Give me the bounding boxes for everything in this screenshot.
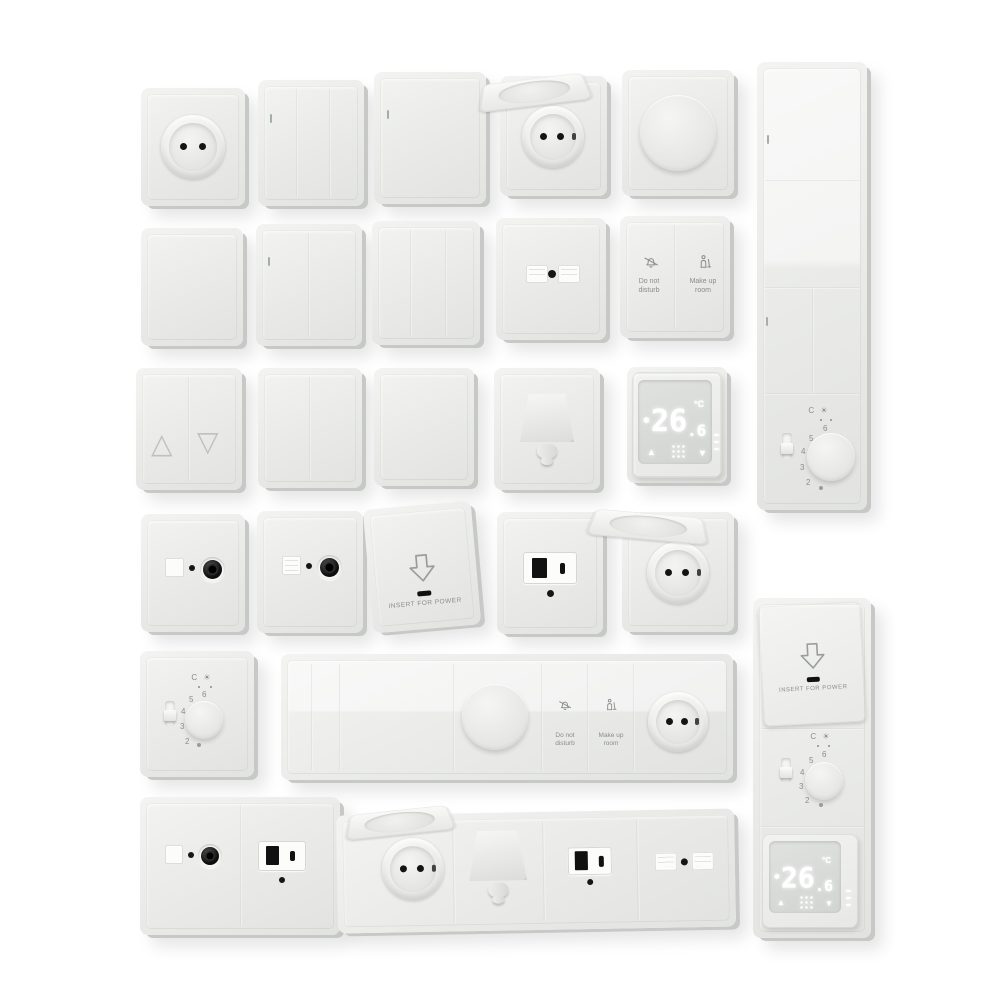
dial-number: 3 bbox=[800, 463, 804, 472]
indicator-led bbox=[767, 135, 769, 144]
socket-pin-hole bbox=[400, 865, 407, 872]
thermostat-knob bbox=[807, 433, 855, 481]
dial-scale-label: C ☀ bbox=[801, 406, 837, 415]
blinds-switch: △ ▽ bbox=[136, 368, 242, 490]
data-port bbox=[558, 265, 580, 283]
status-tick bbox=[714, 441, 719, 443]
socket-earth-contact bbox=[572, 133, 576, 140]
switch-1-gang bbox=[374, 72, 486, 204]
socket-well bbox=[648, 692, 708, 752]
dial-number: 2 bbox=[805, 796, 809, 805]
usb-port-plate bbox=[568, 847, 612, 876]
vertical-hotel-panel: INSERT FOR POWER C ☀ 6 5 4 3 2 ❄ 26 .6 °… bbox=[753, 598, 871, 938]
dot-grid-icon bbox=[799, 895, 813, 909]
socket-well bbox=[647, 542, 709, 604]
thermostat-knob bbox=[805, 762, 843, 800]
socket-pin-hole bbox=[180, 143, 187, 150]
dial-number: 4 bbox=[800, 768, 804, 777]
dial-number: 6 bbox=[202, 690, 206, 699]
scale-dot bbox=[820, 419, 822, 421]
coax-connector bbox=[198, 844, 222, 868]
no-bell-icon bbox=[642, 254, 660, 272]
socket-pin-hole bbox=[557, 133, 564, 140]
indicator-dot bbox=[587, 879, 593, 885]
frost-dot bbox=[819, 486, 823, 490]
mode-slider-handle bbox=[781, 443, 793, 454]
module-seam bbox=[452, 822, 456, 922]
usb-c-port bbox=[290, 851, 295, 861]
indicator-led bbox=[268, 257, 270, 266]
status-tick bbox=[846, 897, 851, 899]
keycard-face: INSERT FOR POWER bbox=[758, 601, 866, 726]
down-arrow-icon bbox=[796, 639, 830, 673]
data-port bbox=[282, 556, 301, 575]
socket-pin-hole bbox=[417, 865, 424, 872]
dial-number: 6 bbox=[823, 424, 827, 433]
status-tick bbox=[714, 434, 719, 436]
tv-sat-outlet bbox=[257, 511, 363, 633]
cable-hood bbox=[468, 830, 527, 881]
data-port bbox=[655, 853, 677, 871]
blank-plate bbox=[141, 228, 243, 346]
rocker-seam bbox=[339, 664, 341, 770]
status-tick bbox=[846, 890, 851, 892]
no-bell-icon bbox=[557, 698, 573, 714]
module-seam bbox=[761, 728, 863, 730]
rocker-seam bbox=[674, 225, 676, 329]
down-arrow-icon: ▼ bbox=[698, 449, 707, 458]
cable-gland-tip bbox=[541, 457, 553, 465]
hotel-service-switch: Do notdisturb Make uproom bbox=[620, 216, 730, 338]
mode-icon: ❄ bbox=[643, 417, 650, 425]
rocker-seam bbox=[296, 89, 298, 197]
rocker-seam bbox=[329, 89, 331, 197]
mode-icon: ❄ bbox=[774, 874, 780, 881]
blinds-up-icon: △ bbox=[151, 430, 173, 458]
module-seam bbox=[765, 393, 859, 395]
dimmer-knob bbox=[640, 95, 716, 171]
dial-scale-label: C ☀ bbox=[184, 673, 220, 682]
scale-dot bbox=[198, 686, 200, 688]
switch-2-gang bbox=[258, 368, 362, 488]
module-seam bbox=[541, 663, 543, 771]
dial-thermostat: C ☀ 6 5 4 3 2 bbox=[140, 651, 254, 777]
data-port bbox=[165, 558, 184, 577]
socket-pin-hole bbox=[665, 569, 672, 576]
socket-earth-contact bbox=[432, 865, 436, 872]
vertical-multi-panel: C ☀ 6 5 4 3 2 bbox=[757, 62, 867, 510]
thermostat-knob bbox=[185, 701, 223, 739]
socket-pin-hole bbox=[199, 143, 206, 150]
scale-dot bbox=[828, 745, 830, 747]
usb-c-port bbox=[599, 856, 604, 867]
rocker-seam bbox=[587, 663, 589, 771]
release-dot bbox=[681, 858, 688, 865]
frost-dot bbox=[197, 743, 201, 747]
data-port bbox=[165, 845, 183, 864]
tv-sat-outlet bbox=[141, 514, 245, 632]
unit-label: °C bbox=[694, 400, 704, 409]
up-arrow-icon: ▲ bbox=[647, 448, 656, 457]
indicator-dot bbox=[547, 590, 554, 597]
indicator-led bbox=[270, 114, 272, 123]
scale-dot bbox=[830, 419, 832, 421]
card-slot bbox=[417, 590, 431, 596]
module-seam bbox=[636, 819, 640, 919]
release-dot bbox=[189, 565, 195, 571]
dimmer-knob bbox=[462, 684, 528, 750]
thermostat-screen: ❄ 26 .6 °C ▲ ▼ bbox=[638, 380, 712, 464]
status-tick bbox=[714, 448, 719, 450]
up-arrow-icon: ▲ bbox=[777, 899, 785, 907]
switch-3-gang bbox=[258, 80, 364, 206]
rocker-seam bbox=[812, 289, 814, 391]
rocker-seam bbox=[188, 377, 190, 481]
cable-hood bbox=[520, 394, 574, 442]
temperature-fraction: .6 bbox=[687, 423, 706, 439]
frost-dot bbox=[819, 803, 823, 807]
usb-port-plate bbox=[258, 841, 306, 871]
coax-connector bbox=[200, 557, 225, 582]
rocker-seam bbox=[309, 377, 311, 479]
coax-connector bbox=[317, 555, 342, 580]
dnd-label: Do notdisturb bbox=[624, 278, 674, 296]
mur-label: Make uproom bbox=[678, 278, 728, 296]
rocker-seam bbox=[410, 230, 412, 336]
status-tick bbox=[846, 904, 851, 906]
release-dot bbox=[188, 852, 194, 858]
module-seam bbox=[542, 821, 546, 921]
temperature-value: 26 bbox=[651, 407, 687, 437]
dial-number: 3 bbox=[799, 782, 803, 791]
double-frame-tv-usb bbox=[140, 797, 340, 935]
usb-a-port bbox=[575, 851, 588, 870]
unit-label: °C bbox=[822, 857, 831, 865]
dial-scale-label: C ☀ bbox=[803, 732, 839, 741]
rocker-seam bbox=[308, 233, 310, 337]
temperature-fraction: .6 bbox=[815, 879, 833, 894]
socket-pin-hole bbox=[681, 718, 688, 725]
thermostat-screen: ❄ 26 .6 °C ▲ ▼ bbox=[769, 841, 841, 913]
module-seam bbox=[240, 806, 242, 926]
usb-a-port bbox=[532, 558, 547, 578]
release-dot bbox=[306, 563, 312, 569]
socket-well bbox=[522, 106, 584, 168]
dial-number: 5 bbox=[809, 756, 813, 765]
temperature-value: 26 bbox=[781, 864, 815, 892]
blinds-down-icon: ▽ bbox=[197, 428, 219, 456]
switch-1-gang bbox=[374, 368, 474, 486]
down-arrow-icon: ▼ bbox=[825, 900, 833, 908]
rotary-dimmer bbox=[622, 70, 734, 196]
rocker-seam bbox=[445, 230, 447, 336]
horizontal-multi-panel: Do notdisturb Make uproom bbox=[281, 654, 733, 780]
socket-well bbox=[161, 115, 225, 179]
dial-number: 4 bbox=[181, 707, 185, 716]
socket-earth-contact bbox=[697, 569, 701, 576]
indicator-dot bbox=[279, 877, 285, 883]
rocker-seam bbox=[311, 664, 313, 770]
socket-pin-hole bbox=[666, 718, 673, 725]
data-outlet-duplex bbox=[496, 218, 606, 340]
dial-number: 4 bbox=[801, 447, 805, 456]
socket-pin-hole bbox=[682, 569, 689, 576]
module-seam bbox=[453, 663, 455, 771]
cable-gland-tip bbox=[492, 896, 504, 904]
data-port bbox=[692, 852, 714, 870]
keycard-label: INSERT FOR POWER bbox=[371, 595, 479, 611]
usb-a-port bbox=[266, 846, 279, 865]
digital-thermostat: ❄ 26 .6 °C ▲ ▼ bbox=[627, 367, 727, 483]
down-arrow-icon bbox=[404, 550, 441, 587]
data-port bbox=[526, 265, 548, 283]
dot-grid-icon bbox=[671, 444, 685, 458]
socket-well bbox=[381, 838, 444, 901]
thermostat-body: ❄ 26 .6 °C ▲ ▼ bbox=[762, 834, 858, 928]
module-seam bbox=[765, 180, 859, 182]
release-dot bbox=[548, 270, 556, 278]
dial-number: 6 bbox=[822, 750, 826, 759]
mode-slider-handle bbox=[780, 767, 792, 778]
scale-dot bbox=[817, 745, 819, 747]
keycard-switch: INSERT FOR POWER bbox=[363, 501, 481, 634]
module-seam bbox=[761, 826, 863, 828]
socket-pin-hole bbox=[540, 133, 547, 140]
switch-2-gang bbox=[256, 224, 362, 346]
usb-c-port bbox=[560, 563, 565, 574]
dial-number: 3 bbox=[180, 722, 184, 731]
cable-outlet bbox=[494, 368, 600, 490]
dial-number: 2 bbox=[185, 737, 189, 746]
product-render-canvas: C ☀ 6 5 4 3 2 Do notdisturb bbox=[0, 0, 1000, 1000]
module-seam bbox=[633, 663, 635, 771]
usb-port-plate bbox=[523, 552, 577, 584]
mode-slider-handle bbox=[164, 710, 176, 721]
indicator-led bbox=[387, 110, 389, 119]
housekeeping-icon bbox=[603, 697, 619, 713]
scale-dot bbox=[210, 686, 212, 688]
dnd-label: Do notdisturb bbox=[542, 732, 588, 748]
card-slot bbox=[807, 677, 820, 683]
housekeeping-icon bbox=[696, 253, 714, 271]
socket-earth-contact bbox=[695, 718, 699, 725]
dial-number: 2 bbox=[806, 478, 810, 487]
dial-number: 5 bbox=[809, 434, 813, 443]
thermostat-body: ❄ 26 .6 °C ▲ ▼ bbox=[632, 372, 722, 478]
keycard-label: INSERT FOR POWER bbox=[762, 683, 864, 694]
mur-label: Make uproom bbox=[588, 732, 634, 748]
schuko-socket bbox=[141, 88, 245, 206]
switch-3-gang bbox=[372, 221, 480, 345]
dial-number: 5 bbox=[189, 695, 193, 704]
indicator-led bbox=[766, 317, 768, 326]
